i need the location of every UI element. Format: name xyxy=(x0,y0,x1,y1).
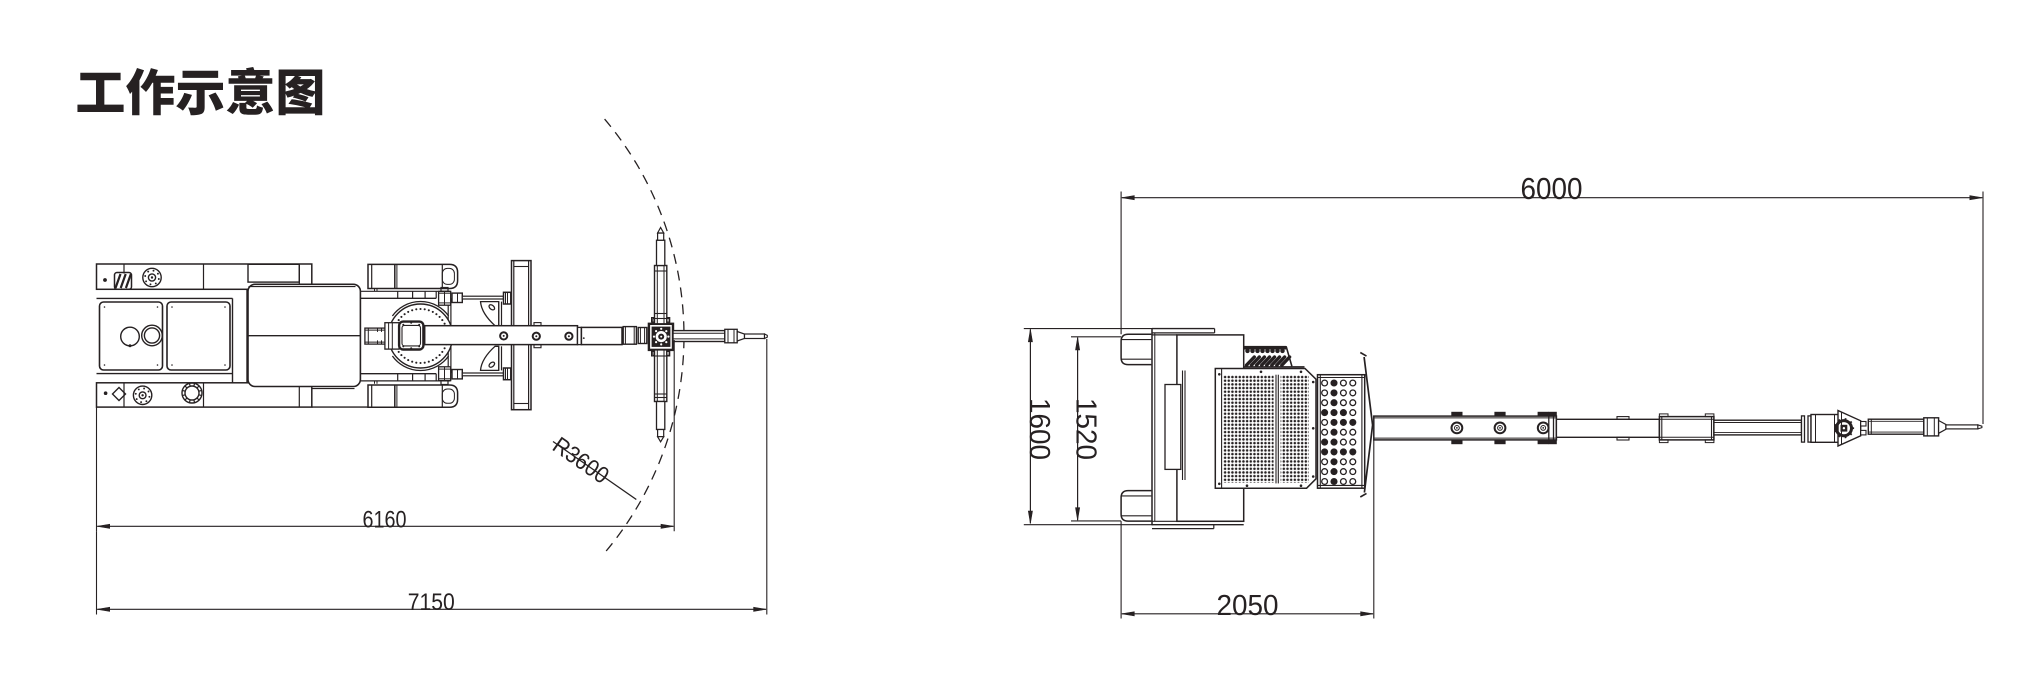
svg-text:1520: 1520 xyxy=(1070,398,1102,460)
svg-text:2050: 2050 xyxy=(1217,590,1279,622)
svg-text:7150: 7150 xyxy=(408,589,455,616)
svg-text:6160: 6160 xyxy=(363,507,407,534)
svg-text:6000: 6000 xyxy=(1521,171,1583,206)
svg-text:1600: 1600 xyxy=(1023,398,1055,460)
